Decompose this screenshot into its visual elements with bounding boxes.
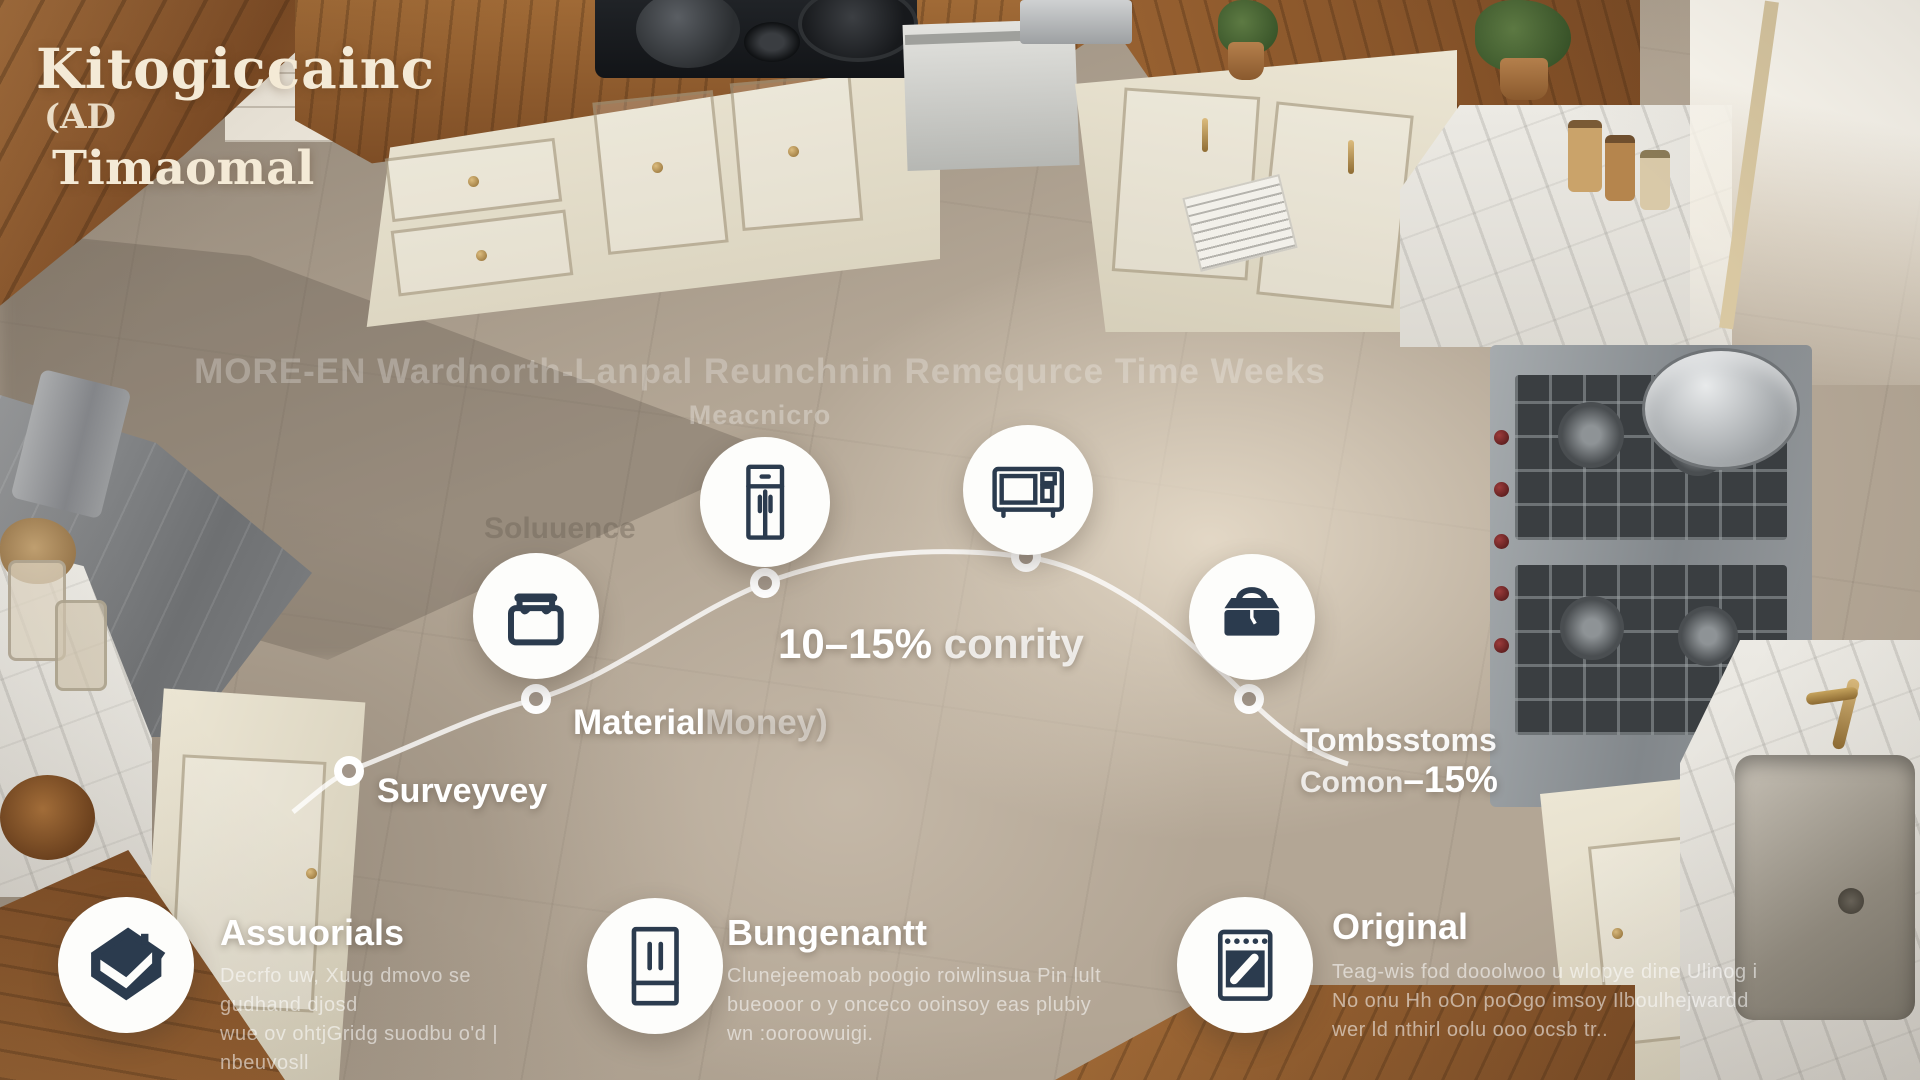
stage-label-survey: Surveyvey bbox=[377, 772, 547, 811]
page-subtitle: (AD bbox=[44, 97, 435, 137]
page-title: Kitogiccainc bbox=[36, 36, 435, 101]
stage-label-percent-rest: conrity bbox=[932, 620, 1084, 667]
kitchen-renovation-infographic: Kitogiccainc (AD Timaomal MORE-EN Wardno… bbox=[0, 0, 1920, 1080]
oven-icon bbox=[1199, 919, 1291, 1011]
stage-label-tools-line1: Tombsstoms bbox=[1300, 722, 1498, 759]
stage-label-material: MaterialMoney) bbox=[573, 703, 828, 743]
legend-desc-line: Clunejeemoab poogio roiwlinsua Pin lult bbox=[727, 962, 1157, 991]
title-block: Kitogiccainc (AD Timaomal bbox=[36, 36, 435, 196]
legend-desc-line: Teag-wis fod dooolwoo u wlopye dine Ulin… bbox=[1332, 958, 1907, 987]
stage-circle-tools bbox=[1189, 554, 1315, 680]
legend-circle-1 bbox=[58, 897, 194, 1033]
legend-desc-line: bueooor o y onceco ooinsoy eas plubiy bbox=[727, 991, 1157, 1020]
watermark-text: MORE-EN Wardnorth-Lanpal Reunchnin Remeq… bbox=[170, 352, 1350, 431]
microwave-icon bbox=[984, 446, 1072, 534]
legend-desc-line: wn :ooroowuigi. bbox=[727, 1020, 1157, 1049]
watermark-line2: Meacnicro bbox=[170, 400, 1350, 431]
legend-circle-2 bbox=[587, 898, 723, 1034]
toolbox-icon bbox=[1209, 574, 1295, 660]
stage-label-tools-line2: Comon bbox=[1300, 766, 1403, 799]
tool-bag-icon bbox=[493, 573, 579, 659]
ghost-text: Soluuence bbox=[484, 512, 636, 546]
legend-title-2: Bungenantt bbox=[727, 912, 927, 954]
stage-circle-survey bbox=[473, 553, 599, 679]
legend-desc-2: Clunejeemoab poogio roiwlinsua Pin lult … bbox=[727, 962, 1157, 1049]
legend-desc-line: No onu Hh oOn poOgo imsoy Ilboulhejwardd bbox=[1332, 987, 1907, 1016]
french-door-fridge-icon bbox=[609, 920, 701, 1012]
stage-circle-material bbox=[700, 437, 830, 567]
watermark-line1: MORE-EN Wardnorth-Lanpal Reunchnin Remeq… bbox=[170, 352, 1350, 392]
legend-desc-3: Teag-wis fod dooolwoo u wlopye dine Ulin… bbox=[1332, 958, 1907, 1045]
legend-title-3: Original bbox=[1332, 906, 1468, 948]
page-title-line2: Timaomal bbox=[52, 141, 435, 196]
house-icon bbox=[80, 919, 172, 1011]
stage-label-material-faint: Money) bbox=[705, 703, 828, 742]
legend-desc-line: Decrfo uw, Xuug dmovo se gudhand djosd bbox=[220, 962, 550, 1020]
stage-label-percent-bold: 10–15% bbox=[778, 620, 932, 667]
legend-desc-line: wer ld nthirl oolu ooo ocsb tr.. bbox=[1332, 1016, 1907, 1045]
stage-label-material-bold: Material bbox=[573, 703, 705, 742]
stage-label-tools-line2-bold: –15% bbox=[1403, 759, 1498, 800]
legend-desc-line: wue ov ohtjGridg suodbu o'd | nbeuvosll bbox=[220, 1020, 550, 1078]
stage-label-tools: Tombsstoms Comon–15% bbox=[1300, 722, 1498, 801]
stage-label-percent: 10–15% conrity bbox=[778, 620, 1084, 668]
refrigerator-icon bbox=[721, 458, 809, 546]
legend-title-1: Assuorials bbox=[220, 912, 404, 954]
legend-circle-3 bbox=[1177, 897, 1313, 1033]
stage-circle-percent bbox=[963, 425, 1093, 555]
legend-desc-1: Decrfo uw, Xuug dmovo se gudhand djosd w… bbox=[220, 962, 550, 1080]
